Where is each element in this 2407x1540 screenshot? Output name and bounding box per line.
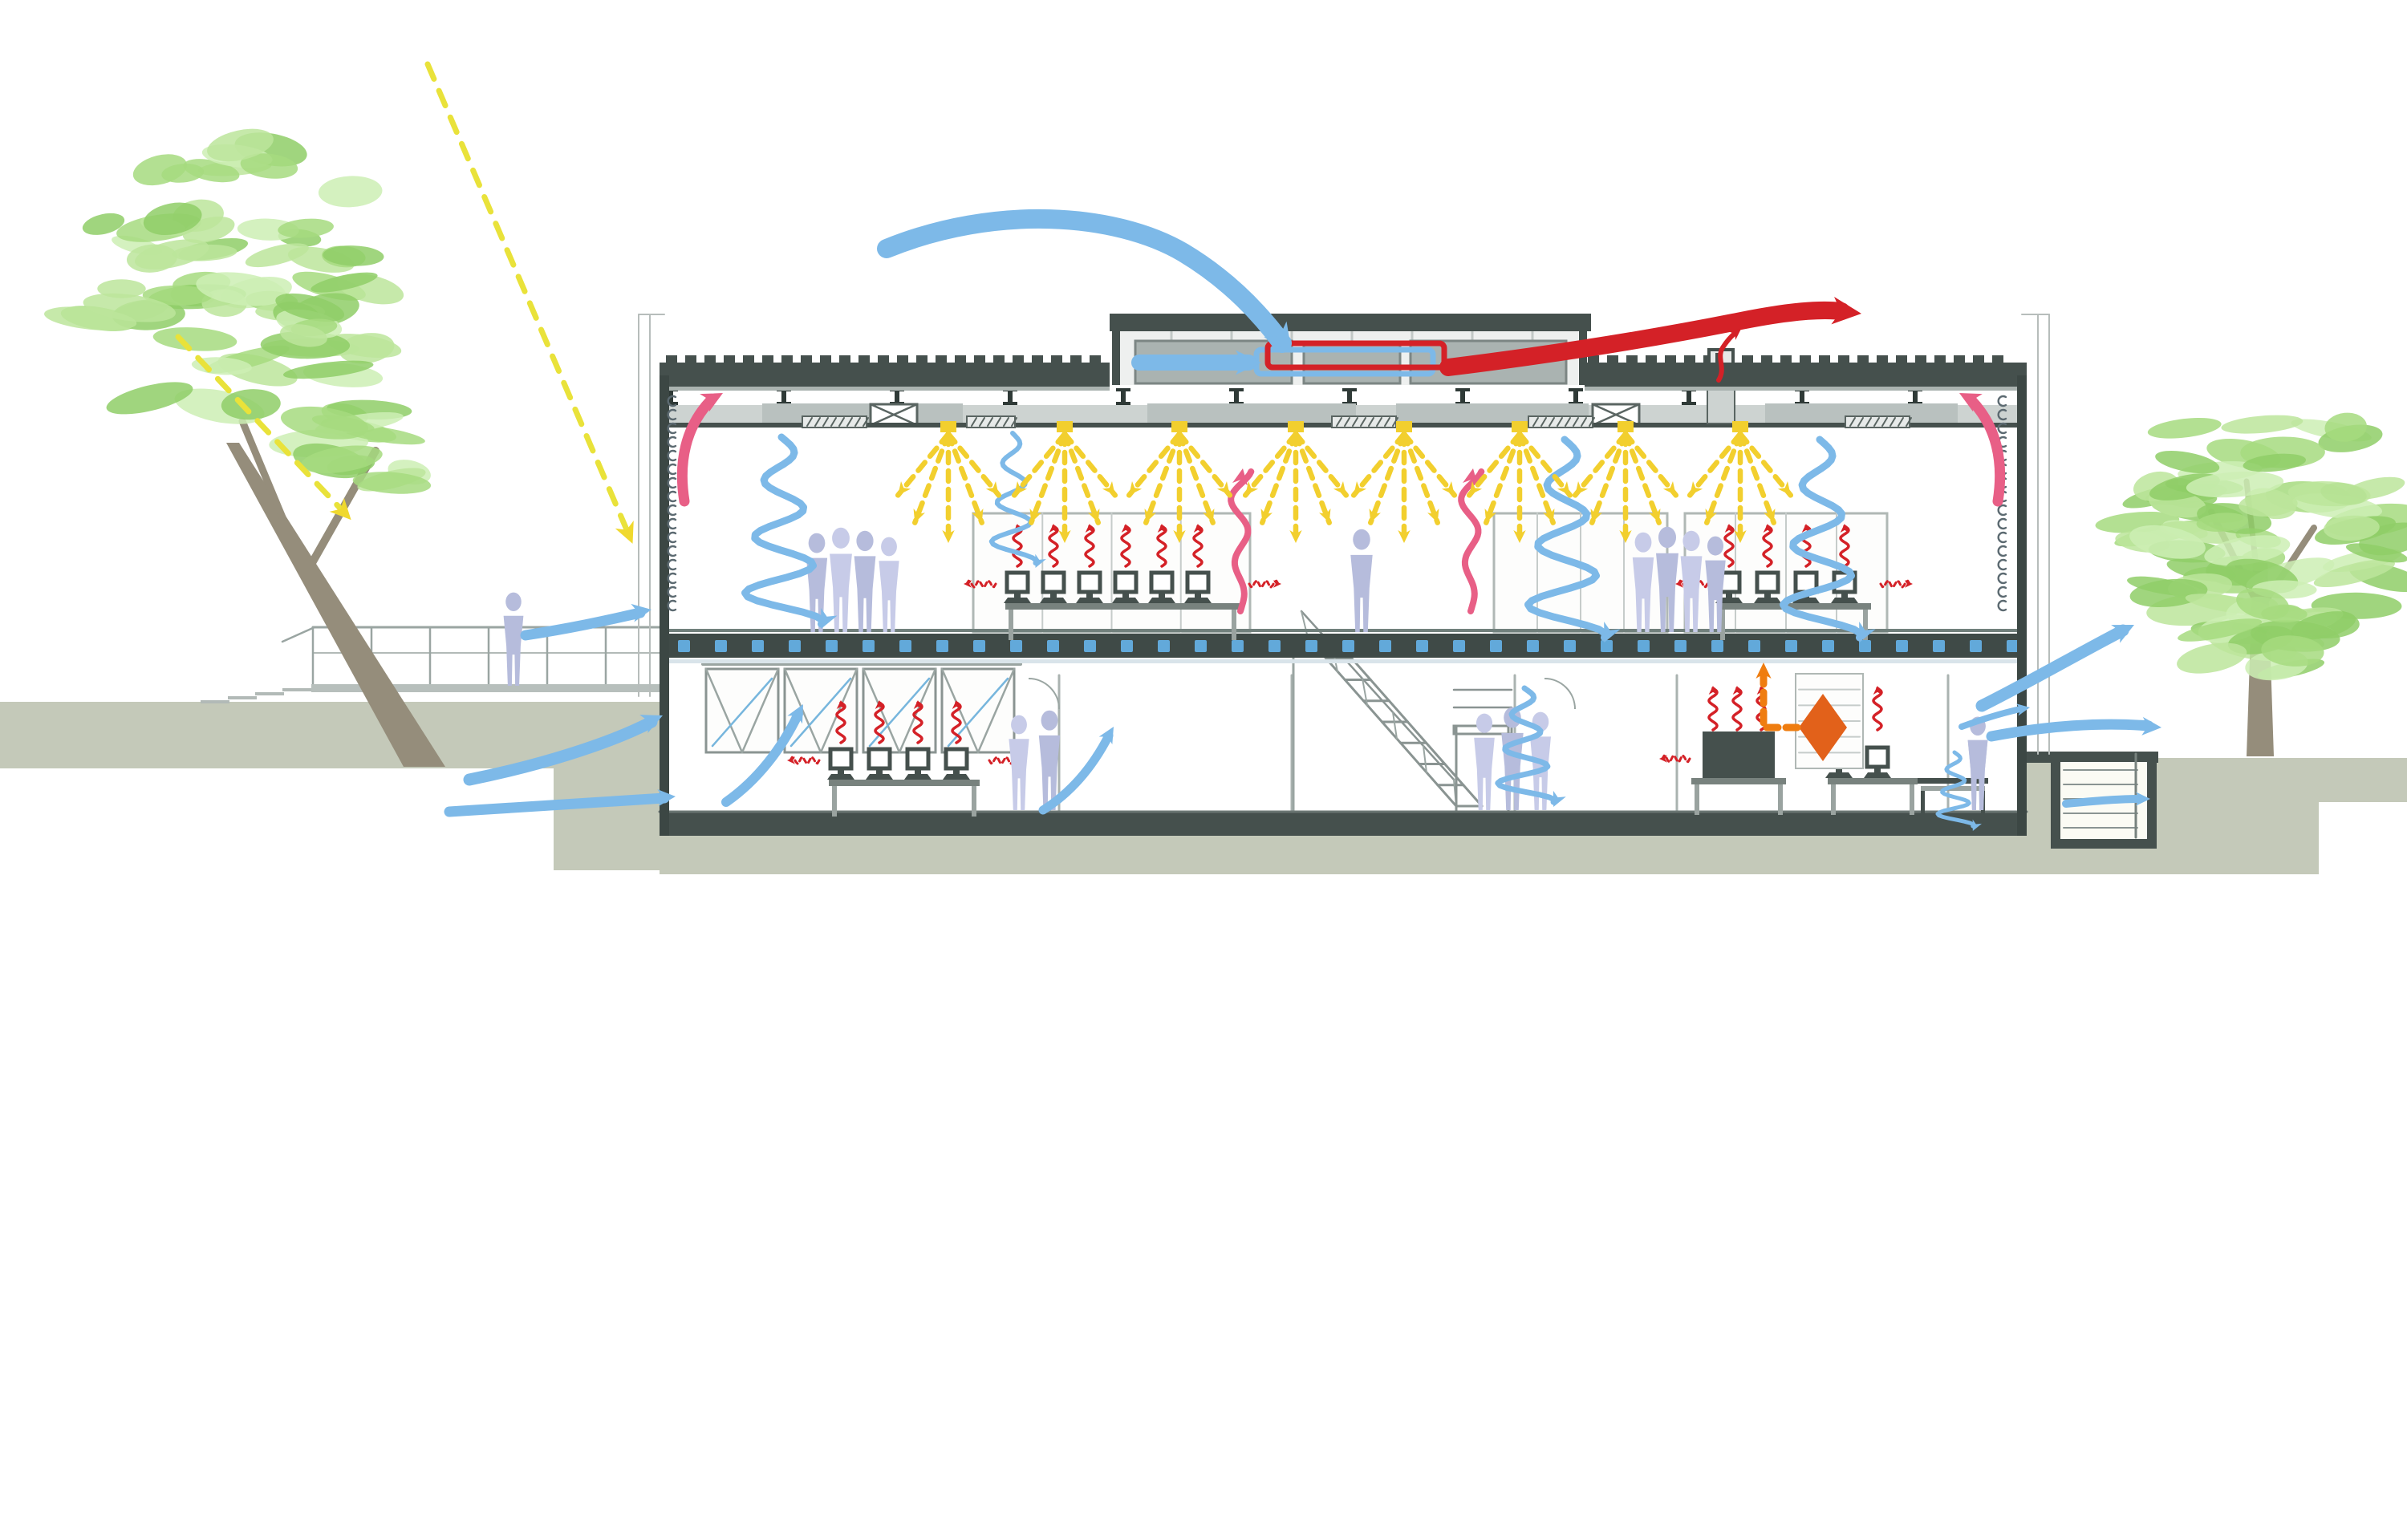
flow-arrow bbox=[526, 613, 640, 635]
basement-floor bbox=[660, 812, 2027, 836]
entry-deck bbox=[196, 627, 663, 703]
deck-person bbox=[504, 593, 524, 686]
summer-section bbox=[0, 64, 2407, 874]
leafy-tree bbox=[43, 124, 445, 767]
section-diagram-svg bbox=[0, 0, 2407, 1540]
flow-arrow bbox=[2066, 799, 2139, 804]
leafy-tree bbox=[2095, 411, 2407, 756]
diagram-canvas bbox=[0, 0, 2407, 1540]
